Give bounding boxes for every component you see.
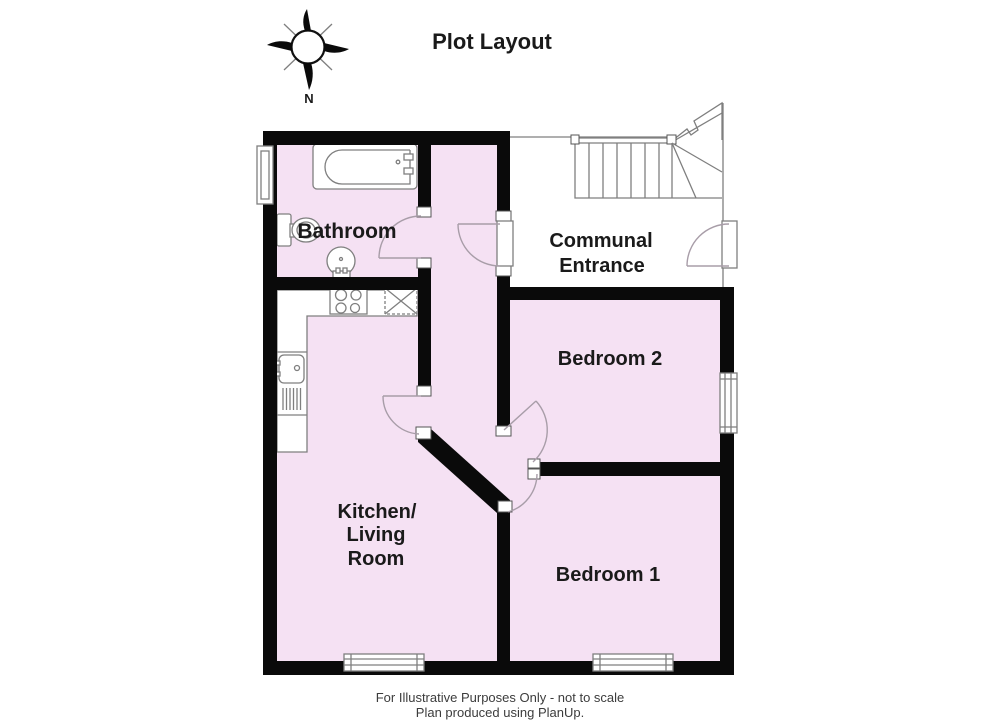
- communal-door: [687, 221, 737, 268]
- floor-plan-page: Plot Layout N: [0, 0, 1000, 727]
- room-label-kitchen-line2: Living: [347, 524, 406, 546]
- room-label-communal-line1: Communal: [549, 230, 652, 252]
- footer-line1: For Illustrative Purposes Only - not to …: [250, 690, 750, 705]
- kitchen-window: [344, 654, 424, 671]
- footer-disclaimer: For Illustrative Purposes Only - not to …: [250, 690, 750, 720]
- room-label-bedroom1: Bedroom 1: [556, 564, 660, 586]
- compass-icon: [267, 9, 349, 90]
- footer-line2: Plan produced using PlanUp.: [250, 705, 750, 720]
- floor-plan-svg: N: [0, 0, 1000, 727]
- room-label-kitchen-line3: Room: [348, 548, 405, 570]
- room-label-bedroom2: Bedroom 2: [558, 348, 662, 370]
- room-label-communal-line2: Entrance: [559, 255, 645, 277]
- compass-north-label: N: [304, 91, 313, 106]
- room-label-bathroom: Bathroom: [297, 220, 396, 243]
- bedroom2-window: [720, 373, 737, 433]
- bedroom1-window: [593, 654, 673, 671]
- stairs-icon: [571, 135, 722, 198]
- appliance-space-icon: [385, 288, 417, 314]
- hob-icon: [330, 287, 367, 314]
- room-label-kitchen-line1: Kitchen/: [338, 501, 417, 523]
- bathtub-icon: [313, 144, 417, 189]
- bathroom-window: [257, 146, 273, 204]
